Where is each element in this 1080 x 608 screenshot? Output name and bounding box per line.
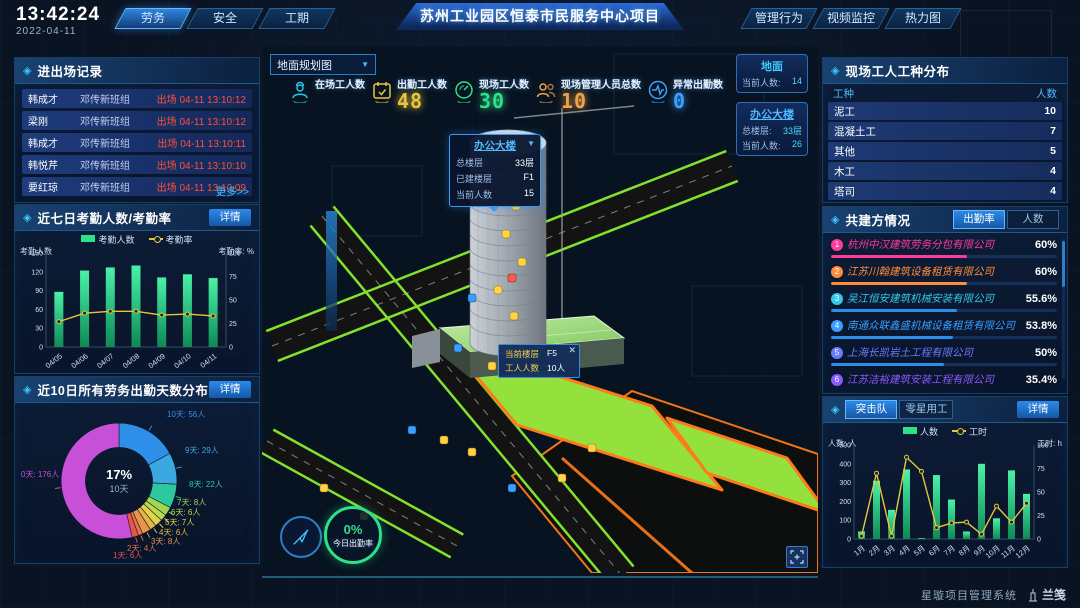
tab-management-behavior[interactable]: 管理行为 [746,8,812,29]
partners-list: 1杭州中汉建筑劳务分包有限公司60% 2江苏川翰建筑设备租赁有限公司60% 3吴… [823,233,1067,389]
donut-chart: 17% 10天 10天: 56人9天: 29人8天: 22人7天: 8人6天: … [19,405,251,557]
svg-text:04/11: 04/11 [198,351,218,369]
tab-headcount[interactable]: 人数 [1007,210,1059,229]
close-icon[interactable] [568,345,576,356]
rank-badge: 4 [831,320,843,332]
svg-text:500: 500 [839,443,851,450]
worker-icon [288,79,312,103]
donut-label: 0天: 176人 [21,469,59,480]
tab-schedule[interactable]: 工期 [264,8,330,29]
building-popup-title[interactable]: 办公大楼 [456,138,534,153]
entry-exit-panel: 进出场记录 韩成才邓传新班组出场 04-11 13:10:12 梁刚邓传新班组出… [14,57,260,203]
svg-text:0: 0 [1037,537,1041,544]
rank-badge: 5 [831,347,843,359]
date: 2022-04-11 [16,26,100,37]
entry-row: 韩悦芹邓传新班组出场 04-11 13:10:10 [22,155,252,174]
svg-text:3月: 3月 [882,543,897,557]
bar-legend-swatch [81,235,95,242]
svg-text:04/05: 04/05 [44,351,64,370]
page-title: 苏州工业园区恒泰市民服务中心项目 [396,3,684,30]
compass-control[interactable] [280,516,322,558]
donut-label: 1天: 6人 [113,550,142,561]
svg-text:04/06: 04/06 [69,351,89,370]
distribution-panel: 近10日所有劳务出勤天数分布 详情 17% 10天 10天: 56人9天: 29… [14,376,260,564]
diamond-icon [831,403,839,416]
donut-label: 9天: 29人 [185,445,219,456]
svg-text:60: 60 [35,307,43,314]
svg-text:25: 25 [229,321,237,328]
people-icon [534,79,558,103]
svg-text:90: 90 [35,288,43,295]
panel-title: 近七日考勤人数/考勤率 [37,208,209,227]
tab-video-monitor[interactable]: 视频监控 [818,8,884,29]
attendance-panel: 近七日考勤人数/考勤率 详情 考勤人数 考勤率 考勤人数 考勤率: % 0306… [14,204,260,374]
rank-badge: 3 [831,293,843,305]
bar-legend-swatch [903,427,917,434]
svg-text:7月: 7月 [942,543,957,557]
ground-card[interactable]: 地面 当前人数:14 [736,54,808,93]
tab-heatmap[interactable]: 热力图 [890,8,956,29]
svg-text:100: 100 [229,251,241,258]
svg-text:4月: 4月 [897,543,912,557]
svg-text:0: 0 [847,537,851,544]
clock: 13:42:24 2022-04-11 [16,5,100,37]
partners-tabs: 出勤率 人数 [953,210,1059,229]
partner-row: 4南通众联鑫盛机械设备租赁有限公司53.8% [831,318,1057,339]
table-row: 泥工10 [828,102,1062,120]
svg-text:04/09: 04/09 [147,351,167,370]
svg-text:0: 0 [39,345,43,352]
line-legend-swatch [952,430,966,432]
stat-abnormal-attendance: 异常出勤数0 [646,76,723,112]
svg-text:75: 75 [229,274,237,281]
chevron-down-icon [361,60,369,69]
office-building-card[interactable]: 办公大楼 总楼层:33层 当前人数:26 [736,102,808,156]
svg-text:04/10: 04/10 [172,351,192,370]
stat-onsite-workers: 在场工人数 [288,76,365,112]
line-legend-swatch [149,238,163,240]
svg-text:04/07: 04/07 [95,351,115,370]
smart-site-dashboard: 13:42:24 2022-04-11 劳务 安全 工期 苏州工业园区恒泰市民服… [0,0,1080,608]
svg-text:5月: 5月 [912,543,927,557]
footer: 星璇项目管理系统 兰笺 [921,586,1066,603]
teams-panel: 突击队 零星用工 详情 人数 工时 人数: 人 工时: h 0100200300… [822,396,1068,568]
building-popup[interactable]: 办公大楼 总楼层33层 已建楼层F1 当前人数15 [449,134,541,207]
svg-text:50: 50 [1037,490,1045,497]
svg-text:30: 30 [35,326,43,333]
donut-label: 10天: 56人 [167,409,205,420]
svg-text:100: 100 [1037,443,1049,450]
time: 13:42:24 [16,5,100,26]
more-link[interactable]: 更多>> [216,184,249,199]
svg-text:120: 120 [31,269,43,276]
compass-icon [291,527,311,547]
gauge-icon [452,79,476,103]
svg-text:25: 25 [1037,513,1045,520]
partner-row: 1杭州中汉建筑劳务分包有限公司60% [831,237,1057,258]
today-attendance-ring: 0% 今日出勤率 [324,506,382,564]
partners-panel: 共建方情况 出勤率 人数 1杭州中汉建筑劳务分包有限公司60% 2江苏川翰建筑设… [822,206,1068,394]
svg-text:150: 150 [31,251,43,258]
partner-row: 5上海长凯岩土工程有限公司50% [831,345,1057,366]
worker-types-panel: 现场工人工种分布 工种人数 泥工10 混凝土工7 其他5 木工4 塔司4 [822,57,1068,203]
svg-text:100: 100 [839,518,851,525]
svg-text:1月: 1月 [852,543,867,557]
svg-text:200: 200 [839,499,851,506]
rank-badge: 6 [831,374,843,386]
table-header: 工种人数 [823,84,1067,102]
diamond-icon [831,213,839,226]
entry-row: 韩成才邓传新班组出场 04-11 13:10:12 [22,89,252,108]
tab-labor[interactable]: 劳务 [120,8,186,29]
stats-row: 在场工人数 出勤工人数48 现场工人数30 现场管理人员总数10 [288,76,723,112]
svg-text:75: 75 [1037,466,1045,473]
chevron-down-icon[interactable] [527,139,535,148]
diamond-icon [23,211,31,224]
panel-title: 进出场记录 [37,61,251,80]
svg-text:8月: 8月 [957,543,972,557]
teams-chart: 010020030040050002550751001月2月3月4月5月6月7月… [828,437,1060,563]
entry-row: 韩成才邓传新班组出场 04-11 13:10:11 [22,133,252,152]
attendance-chart: 0306090120150025507510004/0504/0604/0704… [20,245,252,371]
tab-attendance-rate[interactable]: 出勤率 [953,210,1005,229]
svg-text:6月: 6月 [927,543,942,557]
detail-button[interactable]: 详情 [209,209,251,226]
fullscreen-button[interactable] [786,546,808,568]
partner-row: 3吴江恒安建筑机械安装有限公司55.6% [831,291,1057,312]
system-name: 星璇项目管理系统 [921,587,1017,603]
diamond-icon [831,64,839,77]
stat-site-workers: 现场工人数30 [452,76,529,112]
diamond-icon [23,383,31,396]
diamond-icon [23,64,31,77]
partner-row: 6江苏洁裕建筑安装工程有限公司35.4% [831,372,1057,389]
tab-safety[interactable]: 安全 [192,8,258,29]
site-3d-scene[interactable]: 地面规划图 在场工人数 出勤工人数48 现场工人数30 [262,46,818,578]
tab-assault-team[interactable]: 突击队 [845,400,897,419]
site-map [262,46,818,573]
logo-icon [1027,588,1039,602]
stat-site-managers: 现场管理人员总数10 [534,76,641,112]
table-row: 其他5 [828,142,1062,160]
svg-text:50: 50 [229,298,237,305]
calendar-check-icon [370,79,394,103]
scrollbar-thumb[interactable] [1062,241,1065,287]
svg-text:04/08: 04/08 [121,351,141,370]
svg-text:12月: 12月 [1014,543,1032,560]
entry-row: 梁刚邓传新班组出场 04-11 13:10:12 [22,111,252,130]
panel-title: 现场工人工种分布 [845,61,1059,80]
pulse-icon [646,79,670,103]
detail-button[interactable]: 详情 [1017,401,1059,418]
donut-label: 8天: 22人 [189,479,223,490]
panel-title: 近10日所有劳务出勤天数分布 [37,380,209,399]
partner-row: 2江苏川翰建筑设备租赁有限公司60% [831,264,1057,285]
svg-text:0: 0 [229,345,233,352]
svg-text:300: 300 [839,480,851,487]
view-select-dropdown[interactable]: 地面规划图 [270,54,376,75]
table-row: 混凝土工7 [828,122,1062,140]
panel-title: 共建方情况 [845,210,953,229]
table-row: 塔司4 [828,182,1062,200]
detail-button[interactable]: 详情 [209,381,251,398]
svg-text:400: 400 [839,461,851,468]
teams-tabs: 突击队 零星用工 [845,400,1017,419]
svg-text:2月: 2月 [867,543,882,557]
floor-tooltip: 当前楼层F5 工人人数10人 [498,344,580,378]
rank-badge: 2 [831,266,843,278]
stat-attendance-workers: 出勤工人数48 [370,76,447,112]
rank-badge: 1 [831,239,843,251]
tab-odd-jobs[interactable]: 零星用工 [899,400,953,419]
table-row: 木工4 [828,162,1062,180]
fullscreen-icon [790,550,804,564]
footer-logo: 兰笺 [1027,586,1066,603]
